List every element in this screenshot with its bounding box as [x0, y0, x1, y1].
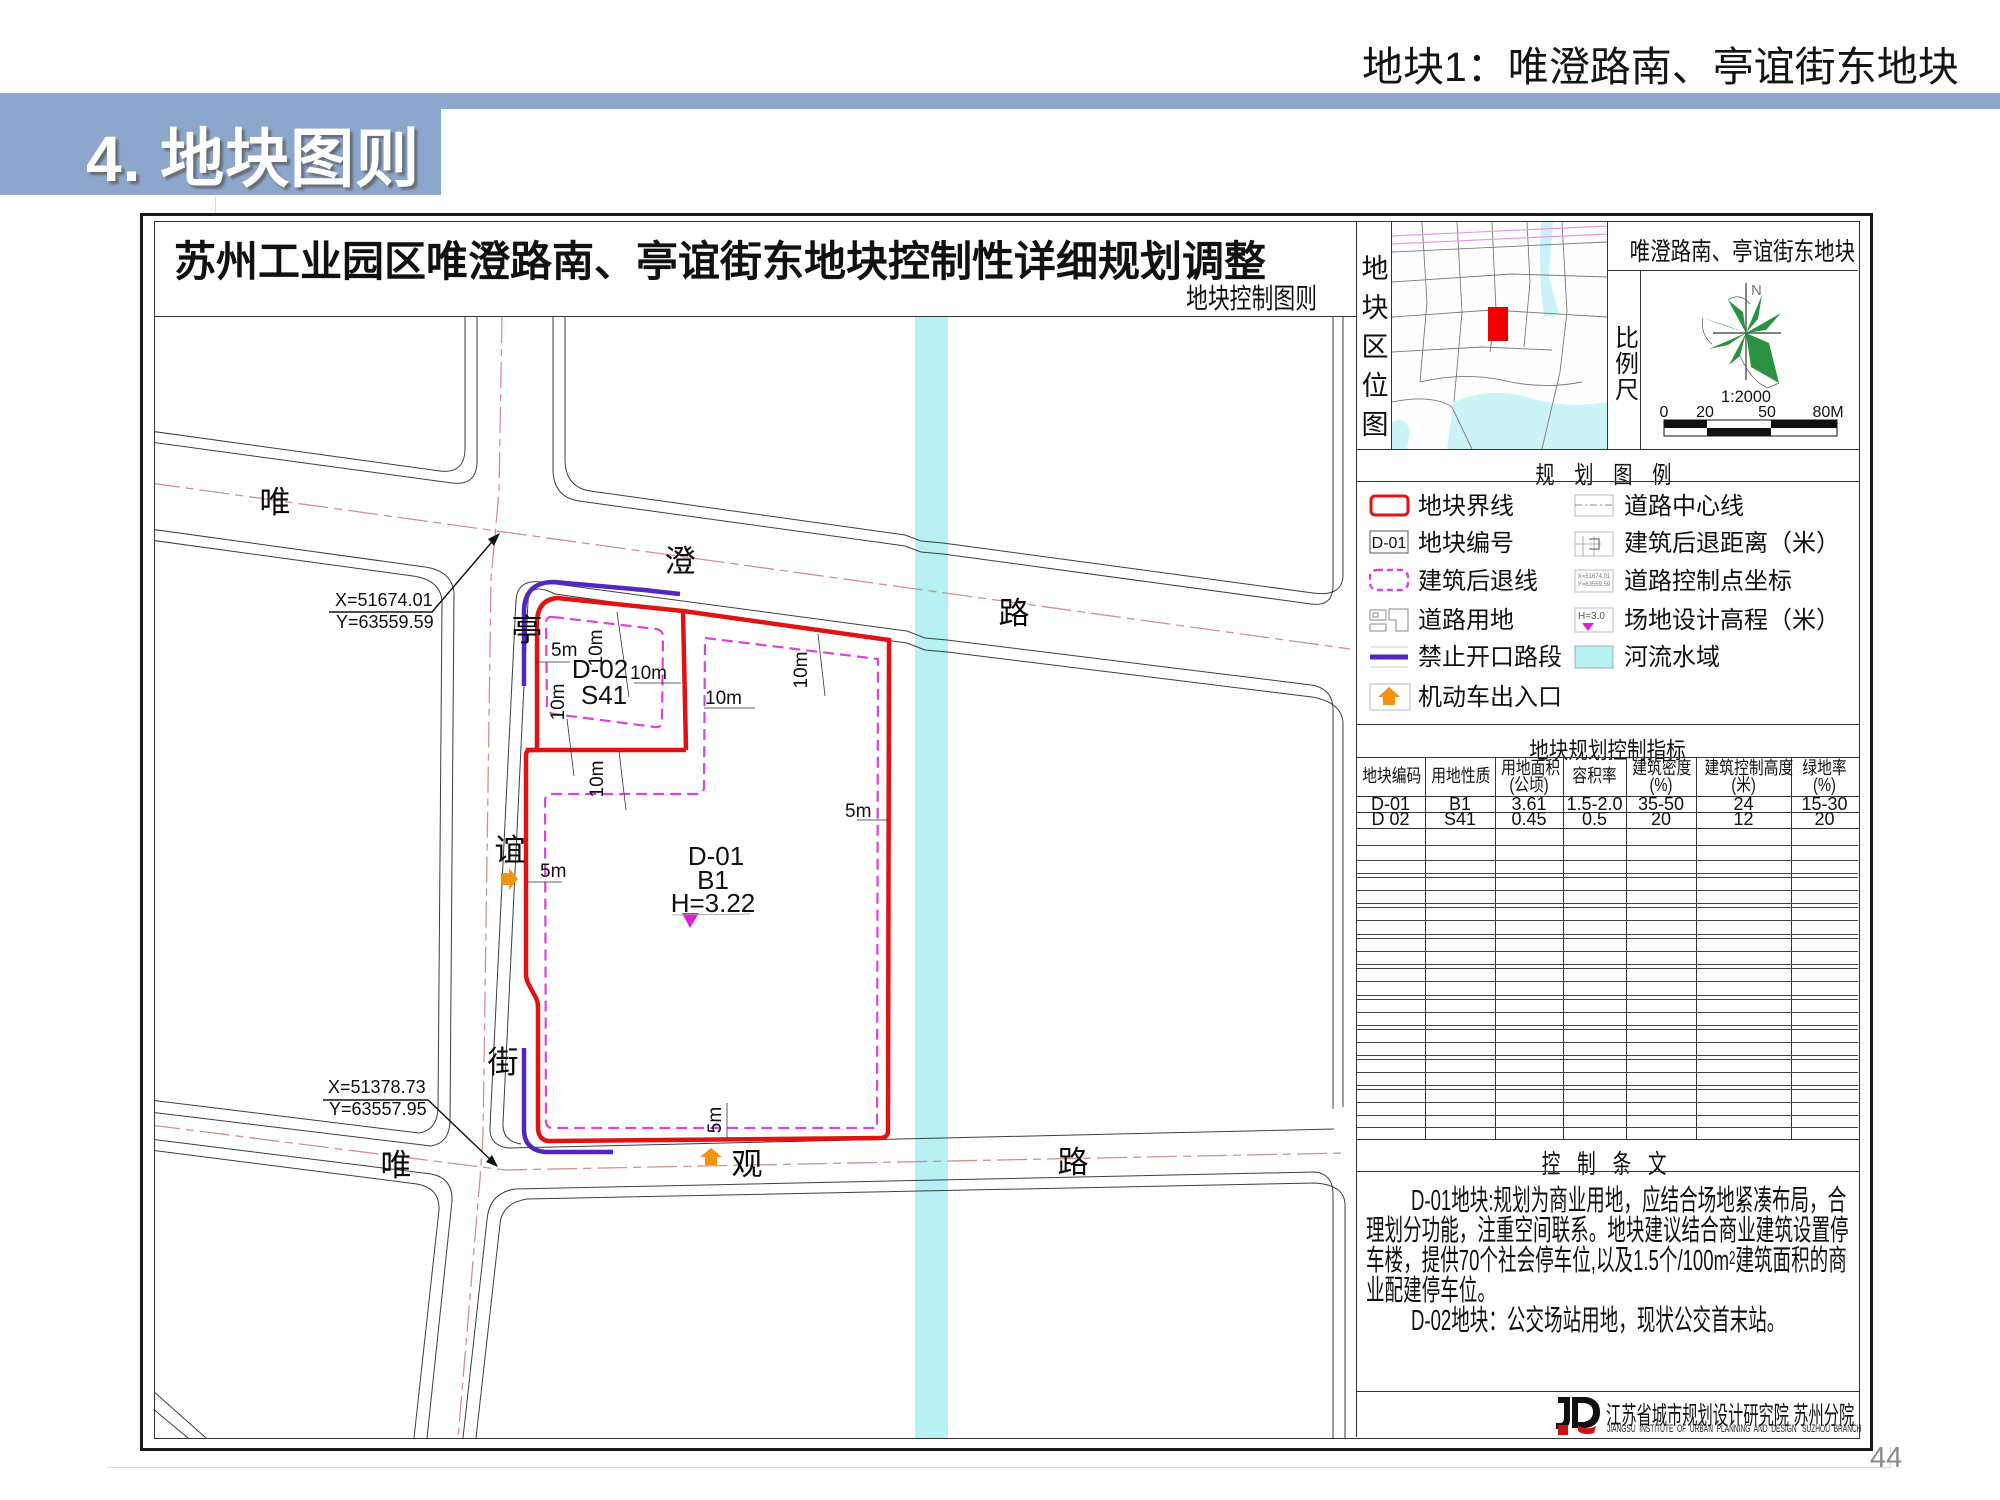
svg-text:街: 街: [488, 1045, 519, 1080]
svg-text:河流水域: 河流水域: [1624, 644, 1720, 671]
svg-text:道路中心线: 道路中心线: [1624, 493, 1744, 520]
svg-text:路: 路: [999, 596, 1030, 631]
svg-text:机动车出入口: 机动车出入口: [1418, 684, 1562, 711]
svg-text:5m: 5m: [540, 861, 566, 882]
svg-text:Y=63559.59: Y=63559.59: [1578, 582, 1611, 588]
svg-text:X=51674.01: X=51674.01: [1578, 574, 1611, 580]
svg-text:禁止开口路段: 禁止开口路段: [1418, 644, 1562, 671]
svg-text:唯: 唯: [260, 485, 291, 520]
svg-text:10m: 10m: [705, 688, 742, 709]
svg-text:5m: 5m: [705, 1107, 726, 1133]
svg-text:地块编号: 地块编号: [1418, 530, 1514, 557]
svg-text:观: 观: [732, 1147, 763, 1182]
svg-text:10m: 10m: [548, 684, 569, 721]
svg-text:Y=63557.95: Y=63557.95: [329, 1099, 427, 1119]
svg-text:5m: 5m: [845, 801, 871, 822]
svg-text:X=51378.73: X=51378.73: [328, 1077, 426, 1097]
svg-text:路: 路: [1058, 1145, 1089, 1180]
svg-text:X=51674.01: X=51674.01: [335, 590, 433, 610]
svg-text:道路控制点坐标: 道路控制点坐标: [1624, 568, 1792, 595]
svg-text:亭: 亭: [512, 613, 543, 648]
svg-text:20: 20: [1696, 404, 1714, 421]
svg-text:N: N: [1751, 282, 1762, 299]
svg-text:建筑后退距离（米）: 建筑后退距离（米）: [1624, 530, 1840, 557]
svg-text:地块界线: 地块界线: [1418, 493, 1514, 520]
svg-text:80M: 80M: [1812, 404, 1843, 421]
svg-text:S41: S41: [581, 680, 627, 710]
svg-text:澄: 澄: [665, 544, 696, 579]
svg-text:建筑后退线: 建筑后退线: [1418, 568, 1538, 595]
svg-text:10m: 10m: [630, 663, 667, 684]
svg-text:唯: 唯: [381, 1148, 412, 1183]
svg-text:Y=63559.59: Y=63559.59: [336, 612, 434, 632]
svg-text:H=3.0: H=3.0: [1578, 611, 1605, 622]
svg-text:谊: 谊: [495, 833, 526, 868]
svg-text:道路用地: 道路用地: [1418, 607, 1514, 634]
svg-text:0: 0: [1660, 404, 1669, 421]
svg-text:场地设计高程（米）: 场地设计高程（米）: [1624, 607, 1840, 634]
svg-text:H=3.22: H=3.22: [671, 888, 756, 918]
svg-text:50: 50: [1758, 404, 1776, 421]
svg-text:10m: 10m: [587, 761, 608, 798]
svg-text:D-01: D-01: [1372, 535, 1407, 552]
svg-text:10m: 10m: [791, 652, 812, 689]
